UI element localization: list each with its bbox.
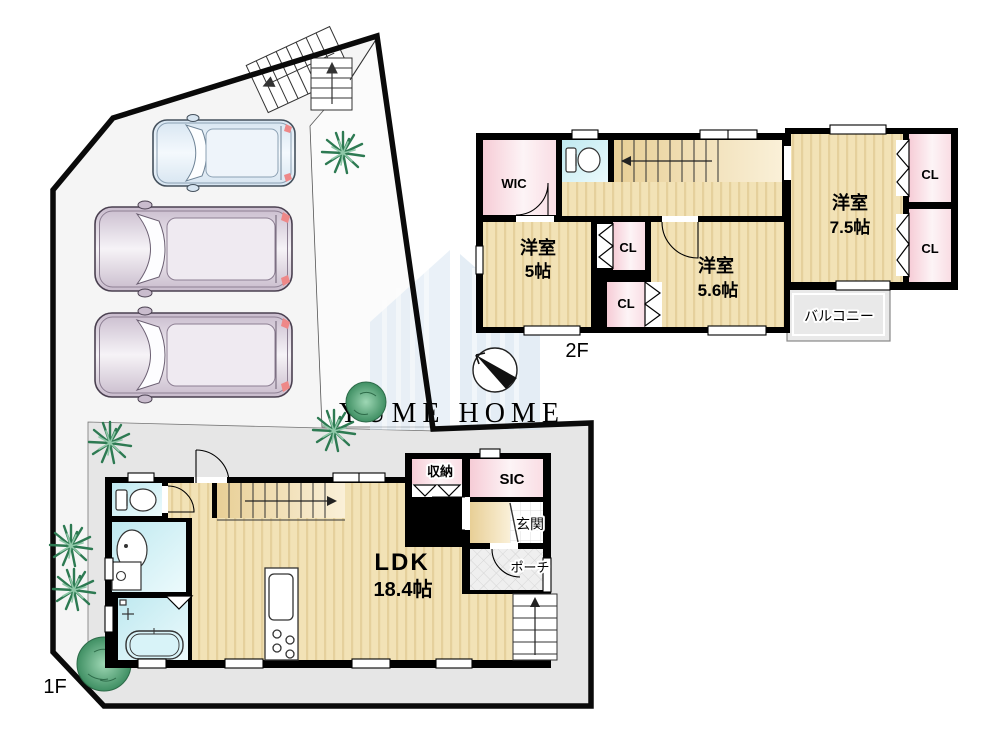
label-wic: WIC — [501, 176, 527, 191]
label-sic: SIC — [499, 471, 524, 488]
stairs-1f — [212, 483, 345, 520]
car-2 — [95, 201, 292, 297]
label-room56-size: 5.6帖 — [698, 280, 739, 300]
porch-steps — [513, 594, 557, 660]
bathtub-icon — [126, 628, 183, 659]
label-1f: 1F — [43, 676, 66, 698]
toilet-icon — [116, 489, 156, 511]
hallway-2f — [562, 182, 782, 216]
plan-1f: LDK 18.4帖 収納 SIC 玄関 ポーチ — [105, 449, 557, 668]
label-room56-name: 洋室 — [698, 255, 734, 276]
exterior-stairs-lower — [311, 58, 352, 110]
label-porch: ポーチ — [510, 560, 549, 575]
label-ldk: LDK — [374, 549, 429, 576]
label-cl-lower: CL — [617, 296, 634, 311]
label-cl-ne: CL — [921, 167, 938, 182]
label-room75-size: 7.5帖 — [830, 217, 871, 237]
car-1 — [153, 115, 295, 192]
label-2f: 2F — [565, 340, 588, 362]
washing-machine-icon — [112, 562, 141, 590]
floorplan-page: YUME HOME 1F — [0, 0, 1000, 737]
label-room5-size: 5帖 — [525, 261, 551, 281]
kitchen-counter — [265, 568, 298, 660]
label-balcony: バルコニー — [804, 308, 874, 324]
hall-entrance — [470, 502, 510, 543]
label-room75-name: 洋室 — [832, 192, 868, 213]
stairs-2f — [614, 140, 782, 182]
plan-2f: WIC 洋室 5帖 CL CL 洋室 5.6帖 洋室 7.5帖 CL CL バル… — [476, 125, 958, 362]
compass-icon — [473, 348, 517, 392]
toilet-icon — [566, 148, 600, 172]
label-entrance: 玄関 — [516, 516, 544, 532]
hall-1f — [168, 483, 212, 518]
label-room5-name: 洋室 — [520, 237, 556, 258]
storage-doors — [412, 484, 462, 497]
label-cl-se: CL — [921, 241, 938, 256]
floorplan-canvas: YUME HOME 1F — [0, 0, 1000, 737]
tree-icon — [346, 382, 386, 422]
car-3 — [95, 307, 292, 403]
label-ldk-size: 18.4帖 — [374, 578, 433, 601]
label-storage: 収納 — [427, 464, 453, 479]
label-cl-upper: CL — [619, 240, 636, 255]
